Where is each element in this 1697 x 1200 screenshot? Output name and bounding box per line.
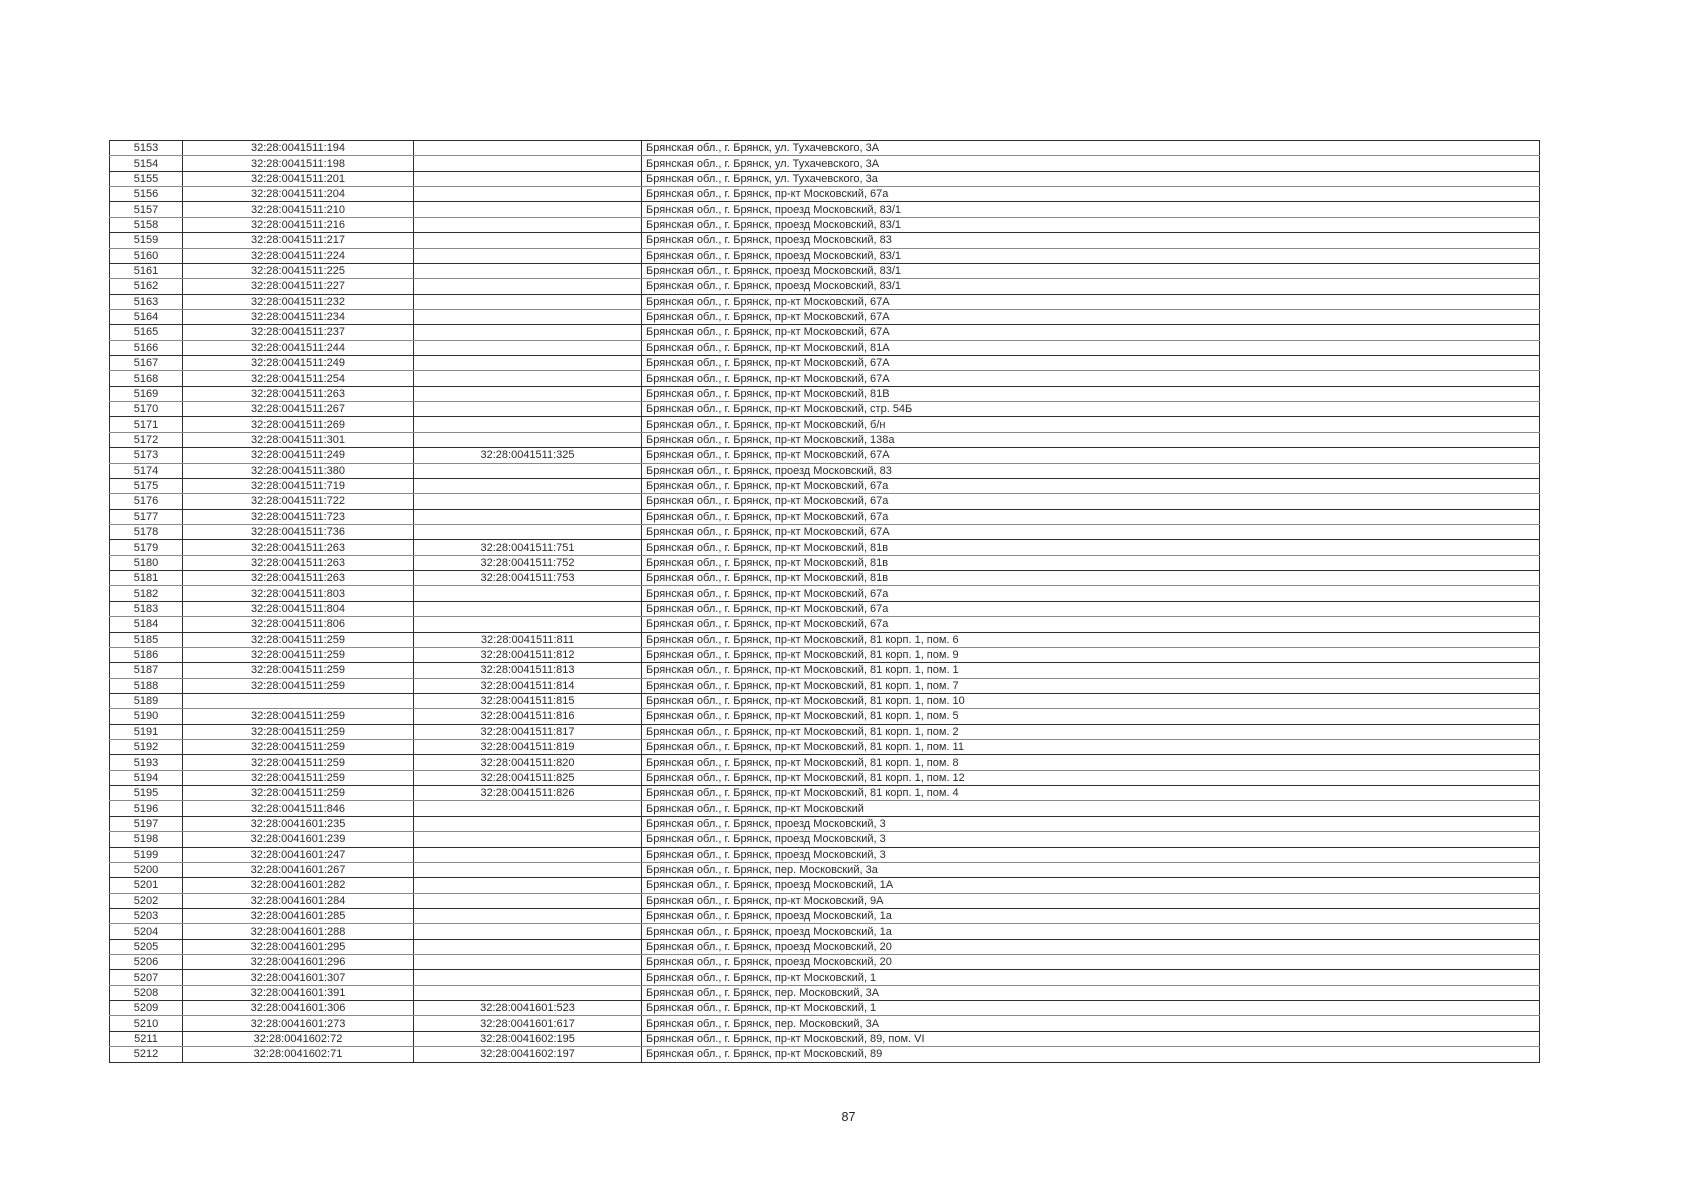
cadastral-secondary-cell [414,878,642,893]
row-number-cell: 5154 [110,156,183,171]
cadastral-secondary-cell [414,432,642,447]
row-number-cell: 5183 [110,601,183,616]
row-number-cell: 5189 [110,693,183,708]
row-number-cell: 5206 [110,955,183,970]
table-row: 516032:28:0041511:224Брянская обл., г. Б… [110,248,1540,263]
table-row: 519832:28:0041601:239Брянская обл., г. Б… [110,832,1540,847]
row-number-cell: 5204 [110,924,183,939]
cadastral-primary-cell: 32:28:0041511:259 [183,786,414,801]
cadastral-secondary-cell [414,279,642,294]
address-cell: Брянская обл., г. Брянск, пр-кт Московск… [642,1001,1540,1016]
cadastral-primary-cell: 32:28:0041511:259 [183,770,414,785]
cadastral-primary-cell: 32:28:0041511:267 [183,402,414,417]
row-number-cell: 5171 [110,417,183,432]
row-number-cell: 5197 [110,816,183,831]
table-row: 518732:28:0041511:25932:28:0041511:813Бр… [110,663,1540,678]
cadastral-secondary-cell [414,325,642,340]
cadastral-secondary-cell: 32:28:0041511:817 [414,724,642,739]
address-cell: Брянская обл., г. Брянск, пр-кт Московск… [642,970,1540,985]
table-row: 518432:28:0041511:806Брянская обл., г. Б… [110,617,1540,632]
table-row: 520532:28:0041601:295Брянская обл., г. Б… [110,939,1540,954]
address-cell: Брянская обл., г. Брянск, проезд Московс… [642,924,1540,939]
table-row: 517332:28:0041511:24932:28:0041511:325Бр… [110,448,1540,463]
row-number-cell: 5163 [110,294,183,309]
table-row: 518632:28:0041511:25932:28:0041511:812Бр… [110,647,1540,662]
cadastral-secondary-cell [414,586,642,601]
row-number-cell: 5157 [110,202,183,217]
table-row: 517732:28:0041511:723Брянская обл., г. Б… [110,509,1540,524]
table-row: 516232:28:0041511:227Брянская обл., г. Б… [110,279,1540,294]
cadastral-secondary-cell: 32:28:0041511:814 [414,678,642,693]
row-number-cell: 5170 [110,402,183,417]
cadastral-primary-cell: 32:28:0041601:306 [183,1001,414,1016]
cadastral-primary-cell: 32:28:0041511:259 [183,647,414,662]
cadastral-primary-cell: 32:28:0041511:259 [183,678,414,693]
cadastral-primary-cell: 32:28:0041601:285 [183,908,414,923]
address-cell: Брянская обл., г. Брянск, пр-кт Московск… [642,555,1540,570]
cadastral-secondary-cell [414,509,642,524]
cadastral-secondary-cell [414,478,642,493]
address-cell: Брянская обл., г. Брянск, пр-кт Московск… [642,340,1540,355]
row-number-cell: 5167 [110,356,183,371]
cadastral-secondary-cell [414,816,642,831]
row-number-cell: 5198 [110,832,183,847]
row-number-cell: 5181 [110,571,183,586]
cadastral-primary-cell: 32:28:0041601:267 [183,862,414,877]
table-row: 516432:28:0041511:234Брянская обл., г. Б… [110,309,1540,324]
table-row: 517232:28:0041511:301Брянская обл., г. Б… [110,432,1540,447]
address-cell: Брянская обл., г. Брянск, ул. Тухачевско… [642,141,1540,156]
row-number-cell: 5196 [110,801,183,816]
row-number-cell: 5195 [110,786,183,801]
address-cell: Брянская обл., г. Брянск, пр-кт Московск… [642,647,1540,662]
cadastral-secondary-cell: 32:28:0041511:752 [414,555,642,570]
table-row: 519732:28:0041601:235Брянская обл., г. Б… [110,816,1540,831]
cadastral-secondary-cell [414,187,642,202]
cadastral-primary-cell: 32:28:0041511:719 [183,478,414,493]
row-number-cell: 5158 [110,217,183,232]
cadastral-primary-cell: 32:28:0041601:282 [183,878,414,893]
cadastral-secondary-cell: 32:28:0041511:751 [414,540,642,555]
row-number-cell: 5207 [110,970,183,985]
table-row: 519332:28:0041511:25932:28:0041511:820Бр… [110,755,1540,770]
address-cell: Брянская обл., г. Брянск, пр-кт Московск… [642,571,1540,586]
row-number-cell: 5209 [110,1001,183,1016]
cadastral-primary-cell: 32:28:0041601:307 [183,970,414,985]
row-number-cell: 5185 [110,632,183,647]
document-page: 515332:28:0041511:194Брянская обл., г. Б… [0,0,1697,1200]
cadastral-primary-cell [183,693,414,708]
cadastral-primary-cell: 32:28:0041511:237 [183,325,414,340]
row-number-cell: 5187 [110,663,183,678]
row-number-cell: 5211 [110,1031,183,1046]
table-row: 516632:28:0041511:244Брянская обл., г. Б… [110,340,1540,355]
table-row: 518832:28:0041511:25932:28:0041511:814Бр… [110,678,1540,693]
row-number-cell: 5184 [110,617,183,632]
cadastral-secondary-cell [414,494,642,509]
address-cell: Брянская обл., г. Брянск, пр-кт Московск… [642,1047,1540,1062]
cadastral-secondary-cell [414,356,642,371]
address-cell: Брянская обл., г. Брянск, проезд Московс… [642,263,1540,278]
row-number-cell: 5164 [110,309,183,324]
row-number-cell: 5203 [110,908,183,923]
address-cell: Брянская обл., г. Брянск, проезд Московс… [642,939,1540,954]
cadastral-primary-cell: 32:28:0041511:232 [183,294,414,309]
table-row: 518932:28:0041511:815Брянская обл., г. Б… [110,693,1540,708]
row-number-cell: 5186 [110,647,183,662]
address-cell: Брянская обл., г. Брянск, пр-кт Московск… [642,509,1540,524]
table-row: 518532:28:0041511:25932:28:0041511:811Бр… [110,632,1540,647]
row-number-cell: 5205 [110,939,183,954]
cadastral-secondary-cell [414,801,642,816]
table-row: 515832:28:0041511:216Брянская обл., г. Б… [110,217,1540,232]
row-number-cell: 5202 [110,893,183,908]
cadastral-primary-cell: 32:28:0041511:723 [183,509,414,524]
table-row: 520232:28:0041601:284Брянская обл., г. Б… [110,893,1540,908]
table-row: 519532:28:0041511:25932:28:0041511:826Бр… [110,786,1540,801]
cadastral-secondary-cell [414,340,642,355]
address-cell: Брянская обл., г. Брянск, пер. Московски… [642,862,1540,877]
cadastral-secondary-cell: 32:28:0041511:812 [414,647,642,662]
table-row: 517632:28:0041511:722Брянская обл., г. Б… [110,494,1540,509]
row-number-cell: 5199 [110,847,183,862]
cadastral-secondary-cell [414,263,642,278]
address-cell: Брянская обл., г. Брянск, пр-кт Московск… [642,801,1540,816]
table-row: 516732:28:0041511:249Брянская обл., г. Б… [110,356,1540,371]
table-row: 517432:28:0041511:380Брянская обл., г. Б… [110,463,1540,478]
address-cell: Брянская обл., г. Брянск, пр-кт Московск… [642,524,1540,539]
cadastral-primary-cell: 32:28:0041601:296 [183,955,414,970]
cadastral-secondary-cell [414,893,642,908]
cadastral-primary-cell: 32:28:0041511:259 [183,709,414,724]
table-row: 516132:28:0041511:225Брянская обл., г. Б… [110,263,1540,278]
address-cell: Брянская обл., г. Брянск, ул. Тухачевско… [642,156,1540,171]
cadastral-primary-cell: 32:28:0041511:234 [183,309,414,324]
cadastral-primary-cell: 32:28:0041602:71 [183,1047,414,1062]
cadastral-primary-cell: 32:28:0041511:803 [183,586,414,601]
cadastral-secondary-cell [414,371,642,386]
row-number-cell: 5200 [110,862,183,877]
table-row: 519932:28:0041601:247Брянская обл., г. Б… [110,847,1540,862]
address-cell: Брянская обл., г. Брянск, пер. Московски… [642,985,1540,1000]
cadastral-secondary-cell [414,939,642,954]
address-cell: Брянская обл., г. Брянск, пр-кт Московск… [642,371,1540,386]
row-number-cell: 5182 [110,586,183,601]
cadastral-primary-cell: 32:28:0041511:244 [183,340,414,355]
address-cell: Брянская обл., г. Брянск, пр-кт Московск… [642,786,1540,801]
address-cell: Брянская обл., г. Брянск, пр-кт Московск… [642,309,1540,324]
cadastral-secondary-cell [414,233,642,248]
cadastral-primary-cell: 32:28:0041511:210 [183,202,414,217]
table-row: 519032:28:0041511:25932:28:0041511:816Бр… [110,709,1540,724]
cadastral-secondary-cell: 32:28:0041511:826 [414,786,642,801]
table-row: 516832:28:0041511:254Брянская обл., г. Б… [110,371,1540,386]
cadastral-primary-cell: 32:28:0041511:204 [183,187,414,202]
row-number-cell: 5173 [110,448,183,463]
table-row: 518132:28:0041511:26332:28:0041511:753Бр… [110,571,1540,586]
table-row: 516932:28:0041511:263Брянская обл., г. Б… [110,386,1540,401]
cadastral-primary-cell: 32:28:0041511:201 [183,171,414,186]
cadastral-primary-cell: 32:28:0041511:249 [183,448,414,463]
cadastral-primary-cell: 32:28:0041601:295 [183,939,414,954]
cadastral-primary-cell: 32:28:0041511:722 [183,494,414,509]
address-cell: Брянская обл., г. Брянск, пр-кт Московск… [642,356,1540,371]
cadastral-primary-cell: 32:28:0041511:806 [183,617,414,632]
table-row: 517932:28:0041511:26332:28:0041511:751Бр… [110,540,1540,555]
cadastral-primary-cell: 32:28:0041511:227 [183,279,414,294]
table-row: 517132:28:0041511:269Брянская обл., г. Б… [110,417,1540,432]
cadastral-primary-cell: 32:28:0041601:235 [183,816,414,831]
cadastral-secondary-cell [414,171,642,186]
cadastral-secondary-cell [414,847,642,862]
cadastral-primary-cell: 32:28:0041601:288 [183,924,414,939]
cadastral-primary-cell: 32:28:0041511:198 [183,156,414,171]
row-number-cell: 5155 [110,171,183,186]
table-row: 520432:28:0041601:288Брянская обл., г. Б… [110,924,1540,939]
table-row: 520932:28:0041601:30632:28:0041601:523Бр… [110,1001,1540,1016]
table-row: 519632:28:0041511:846Брянская обл., г. Б… [110,801,1540,816]
table-row: 519232:28:0041511:25932:28:0041511:819Бр… [110,740,1540,755]
address-cell: Брянская обл., г. Брянск, проезд Московс… [642,233,1540,248]
table-row: 518032:28:0041511:26332:28:0041511:752Бр… [110,555,1540,570]
cadastral-secondary-cell [414,832,642,847]
address-cell: Брянская обл., г. Брянск, ул. Тухачевско… [642,171,1540,186]
row-number-cell: 5179 [110,540,183,555]
cadastral-primary-cell: 32:28:0041511:194 [183,141,414,156]
cadastral-primary-cell: 32:28:0041511:263 [183,571,414,586]
table-row: 515732:28:0041511:210Брянская обл., г. Б… [110,202,1540,217]
address-cell: Брянская обл., г. Брянск, проезд Московс… [642,832,1540,847]
address-cell: Брянская обл., г. Брянск, пр-кт Московск… [642,586,1540,601]
row-number-cell: 5212 [110,1047,183,1062]
row-number-cell: 5160 [110,248,183,263]
cadastral-primary-cell: 32:28:0041602:72 [183,1031,414,1046]
cadastral-secondary-cell: 32:28:0041511:813 [414,663,642,678]
cadastral-secondary-cell [414,601,642,616]
cadastral-secondary-cell: 32:28:0041602:197 [414,1047,642,1062]
cadastral-primary-cell: 32:28:0041601:284 [183,893,414,908]
cadastral-primary-cell: 32:28:0041511:736 [183,524,414,539]
row-number-cell: 5153 [110,141,183,156]
address-cell: Брянская обл., г. Брянск, пр-кт Московск… [642,478,1540,493]
address-cell: Брянская обл., г. Брянск, проезд Московс… [642,202,1540,217]
address-cell: Брянская обл., г. Брянск, пр-кт Московск… [642,632,1540,647]
row-number-cell: 5156 [110,187,183,202]
cadastral-secondary-cell [414,417,642,432]
row-number-cell: 5166 [110,340,183,355]
row-number-cell: 5168 [110,371,183,386]
address-cell: Брянская обл., г. Брянск, проезд Московс… [642,816,1540,831]
cadastral-primary-cell: 32:28:0041511:259 [183,724,414,739]
row-number-cell: 5194 [110,770,183,785]
table-row: 520332:28:0041601:285Брянская обл., г. Б… [110,908,1540,923]
row-number-cell: 5172 [110,432,183,447]
row-number-cell: 5174 [110,463,183,478]
row-number-cell: 5162 [110,279,183,294]
row-number-cell: 5188 [110,678,183,693]
cadastral-primary-cell: 32:28:0041511:380 [183,463,414,478]
cadastral-secondary-cell: 32:28:0041511:820 [414,755,642,770]
cadastral-primary-cell: 32:28:0041601:239 [183,832,414,847]
cadastral-primary-cell: 32:28:0041511:259 [183,663,414,678]
address-cell: Брянская обл., г. Брянск, пр-кт Московск… [642,663,1540,678]
row-number-cell: 5190 [110,709,183,724]
cadastral-table: 515332:28:0041511:194Брянская обл., г. Б… [109,140,1540,1063]
cadastral-primary-cell: 32:28:0041511:263 [183,540,414,555]
table-row: 520032:28:0041601:267Брянская обл., г. Б… [110,862,1540,877]
row-number-cell: 5175 [110,478,183,493]
address-cell: Брянская обл., г. Брянск, проезд Московс… [642,908,1540,923]
address-cell: Брянская обл., г. Брянск, пр-кт Московск… [642,678,1540,693]
table-row: 519432:28:0041511:25932:28:0041511:825Бр… [110,770,1540,785]
address-cell: Брянская обл., г. Брянск, пр-кт Московск… [642,417,1540,432]
row-number-cell: 5208 [110,985,183,1000]
cadastral-table-body: 515332:28:0041511:194Брянская обл., г. Б… [110,141,1540,1063]
cadastral-secondary-cell [414,202,642,217]
table-row: 516532:28:0041511:237Брянская обл., г. Б… [110,325,1540,340]
cadastral-secondary-cell [414,309,642,324]
row-number-cell: 5161 [110,263,183,278]
cadastral-secondary-cell [414,386,642,401]
row-number-cell: 5201 [110,878,183,893]
cadastral-secondary-cell: 32:28:0041601:617 [414,1016,642,1031]
cadastral-primary-cell: 32:28:0041511:249 [183,356,414,371]
cadastral-secondary-cell: 32:28:0041511:816 [414,709,642,724]
table-row: 515332:28:0041511:194Брянская обл., г. Б… [110,141,1540,156]
table-row: 517032:28:0041511:267Брянская обл., г. Б… [110,402,1540,417]
cadastral-primary-cell: 32:28:0041601:247 [183,847,414,862]
table-row: 515932:28:0041511:217Брянская обл., г. Б… [110,233,1540,248]
cadastral-secondary-cell [414,985,642,1000]
cadastral-primary-cell: 32:28:0041601:391 [183,985,414,1000]
address-cell: Брянская обл., г. Брянск, пр-кт Московск… [642,294,1540,309]
table-row: 518232:28:0041511:803Брянская обл., г. Б… [110,586,1540,601]
row-number-cell: 5192 [110,740,183,755]
table-row: 518332:28:0041511:804Брянская обл., г. Б… [110,601,1540,616]
row-number-cell: 5191 [110,724,183,739]
cadastral-secondary-cell [414,862,642,877]
cadastral-secondary-cell [414,617,642,632]
table-row: 520832:28:0041601:391Брянская обл., г. Б… [110,985,1540,1000]
address-cell: Брянская обл., г. Брянск, проезд Московс… [642,847,1540,862]
cadastral-secondary-cell: 32:28:0041511:825 [414,770,642,785]
address-cell: Брянская обл., г. Брянск, пр-кт Московск… [642,494,1540,509]
address-cell: Брянская обл., г. Брянск, пр-кт Московск… [642,770,1540,785]
address-cell: Брянская обл., г. Брянск, пр-кт Московск… [642,448,1540,463]
table-row: 521132:28:0041602:7232:28:0041602:195Бря… [110,1031,1540,1046]
cadastral-primary-cell: 32:28:0041511:259 [183,632,414,647]
table-row: 521232:28:0041602:7132:28:0041602:197Бря… [110,1047,1540,1062]
cadastral-primary-cell: 32:28:0041511:216 [183,217,414,232]
cadastral-secondary-cell [414,524,642,539]
row-number-cell: 5159 [110,233,183,248]
address-cell: Брянская обл., г. Брянск, проезд Московс… [642,955,1540,970]
address-cell: Брянская обл., г. Брянск, пр-кт Московск… [642,617,1540,632]
address-cell: Брянская обл., г. Брянск, пр-кт Московск… [642,386,1540,401]
cadastral-primary-cell: 32:28:0041511:217 [183,233,414,248]
address-cell: Брянская обл., г. Брянск, пр-кт Московск… [642,432,1540,447]
cadastral-secondary-cell [414,970,642,985]
cadastral-primary-cell: 32:28:0041511:263 [183,386,414,401]
address-cell: Брянская обл., г. Брянск, проезд Московс… [642,279,1540,294]
address-cell: Брянская обл., г. Брянск, проезд Московс… [642,463,1540,478]
table-row: 517832:28:0041511:736Брянская обл., г. Б… [110,524,1540,539]
table-row: 515532:28:0041511:201Брянская обл., г. Б… [110,171,1540,186]
address-cell: Брянская обл., г. Брянск, проезд Московс… [642,248,1540,263]
table-row: 520632:28:0041601:296Брянская обл., г. Б… [110,955,1540,970]
table-row: 521032:28:0041601:27332:28:0041601:617Бр… [110,1016,1540,1031]
address-cell: Брянская обл., г. Брянск, пр-кт Московск… [642,755,1540,770]
cadastral-secondary-cell: 32:28:0041511:325 [414,448,642,463]
address-cell: Брянская обл., г. Брянск, пр-кт Московск… [642,540,1540,555]
row-number-cell: 5177 [110,509,183,524]
address-cell: Брянская обл., г. Брянск, пр-кт Московск… [642,709,1540,724]
row-number-cell: 5180 [110,555,183,570]
table-row: 520732:28:0041601:307Брянская обл., г. Б… [110,970,1540,985]
table-row: 517532:28:0041511:719Брянская обл., г. Б… [110,478,1540,493]
address-cell: Брянская обл., г. Брянск, пр-кт Московск… [642,601,1540,616]
address-cell: Брянская обл., г. Брянск, пр-кт Московск… [642,724,1540,739]
address-cell: Брянская обл., г. Брянск, проезд Московс… [642,878,1540,893]
cadastral-secondary-cell: 32:28:0041602:195 [414,1031,642,1046]
cadastral-secondary-cell [414,217,642,232]
cadastral-secondary-cell [414,402,642,417]
table-row: 515432:28:0041511:198Брянская обл., г. Б… [110,156,1540,171]
cadastral-primary-cell: 32:28:0041511:846 [183,801,414,816]
cadastral-primary-cell: 32:28:0041511:254 [183,371,414,386]
cadastral-secondary-cell: 32:28:0041511:815 [414,693,642,708]
table-row: 520132:28:0041601:282Брянская обл., г. Б… [110,878,1540,893]
address-cell: Брянская обл., г. Брянск, пер. Московски… [642,1016,1540,1031]
row-number-cell: 5178 [110,524,183,539]
address-cell: Брянская обл., г. Брянск, пр-кт Московск… [642,740,1540,755]
address-cell: Брянская обл., г. Брянск, пр-кт Московск… [642,402,1540,417]
cadastral-secondary-cell [414,908,642,923]
cadastral-secondary-cell [414,463,642,478]
row-number-cell: 5210 [110,1016,183,1031]
cadastral-secondary-cell [414,955,642,970]
cadastral-primary-cell: 32:28:0041511:225 [183,263,414,278]
cadastral-primary-cell: 32:28:0041511:301 [183,432,414,447]
address-cell: Брянская обл., г. Брянск, пр-кт Московск… [642,1031,1540,1046]
cadastral-secondary-cell [414,294,642,309]
cadastral-primary-cell: 32:28:0041511:259 [183,740,414,755]
cadastral-secondary-cell [414,924,642,939]
cadastral-primary-cell: 32:28:0041511:804 [183,601,414,616]
cadastral-primary-cell: 32:28:0041511:224 [183,248,414,263]
cadastral-secondary-cell: 32:28:0041511:811 [414,632,642,647]
cadastral-secondary-cell: 32:28:0041601:523 [414,1001,642,1016]
row-number-cell: 5169 [110,386,183,401]
row-number-cell: 5193 [110,755,183,770]
cadastral-secondary-cell [414,248,642,263]
address-cell: Брянская обл., г. Брянск, пр-кт Московск… [642,325,1540,340]
row-number-cell: 5165 [110,325,183,340]
address-cell: Брянская обл., г. Брянск, проезд Московс… [642,217,1540,232]
address-cell: Брянская обл., г. Брянск, пр-кт Московск… [642,893,1540,908]
cadastral-primary-cell: 32:28:0041511:269 [183,417,414,432]
address-cell: Брянская обл., г. Брянск, пр-кт Московск… [642,187,1540,202]
cadastral-primary-cell: 32:28:0041601:273 [183,1016,414,1031]
cadastral-primary-cell: 32:28:0041511:259 [183,755,414,770]
table-row: 519132:28:0041511:25932:28:0041511:817Бр… [110,724,1540,739]
row-number-cell: 5176 [110,494,183,509]
cadastral-secondary-cell: 32:28:0041511:819 [414,740,642,755]
address-cell: Брянская обл., г. Брянск, пр-кт Московск… [642,693,1540,708]
cadastral-secondary-cell [414,141,642,156]
table-row: 516332:28:0041511:232Брянская обл., г. Б… [110,294,1540,309]
cadastral-secondary-cell [414,156,642,171]
